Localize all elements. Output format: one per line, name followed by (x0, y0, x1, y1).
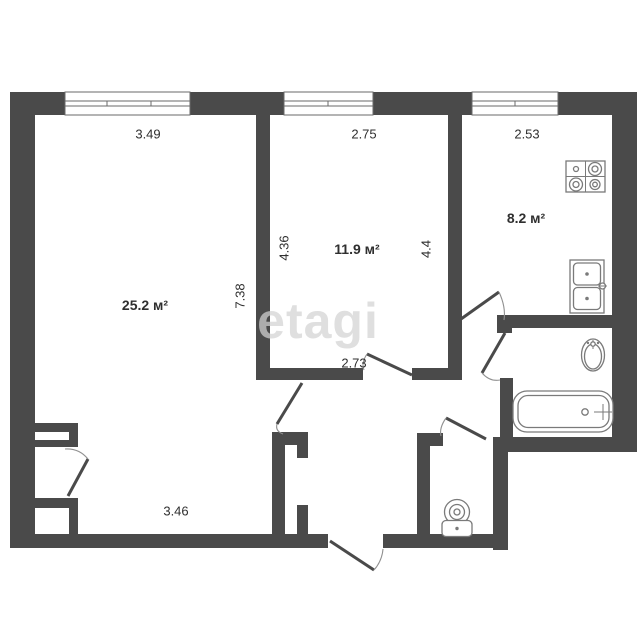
floor-plan: 3.49 2.75 2.53 7.38 4.36 4.4 2.73 3.46 2… (0, 0, 640, 640)
dim-living-bottom: 3.46 (163, 504, 188, 519)
closet-wall-stub (35, 440, 78, 447)
washbasin-icon (582, 339, 605, 371)
stove-icon (566, 161, 605, 192)
wall-segment (493, 440, 508, 550)
dim-middle-right: 4.4 (419, 240, 434, 258)
wall-segment (448, 115, 462, 380)
dim-kitchen-top: 2.53 (514, 127, 539, 142)
bathtub-icon (513, 391, 613, 432)
dim-middle-top: 2.75 (351, 127, 376, 142)
wall-segment (417, 433, 430, 548)
wall-segment (373, 92, 472, 115)
closet-wall-stub (69, 498, 78, 535)
dim-middle-left: 4.36 (277, 235, 292, 260)
dim-living-top: 3.49 (135, 127, 160, 142)
area-label-middle-room: 11.9 м² (334, 241, 380, 257)
wall-segment (190, 92, 284, 115)
wall-segment (493, 437, 637, 452)
wall-segment (497, 315, 637, 328)
window-living-room (65, 92, 190, 115)
wall-segment (272, 432, 285, 548)
wall-segment (10, 92, 35, 548)
window-kitchen (472, 92, 558, 115)
wall-segment (500, 378, 513, 440)
wall-segment (612, 92, 637, 452)
dim-living-height: 7.38 (233, 283, 248, 308)
area-label-kitchen: 8.2 м² (507, 210, 546, 226)
window-middle-room (284, 92, 373, 115)
wall-segment (417, 433, 443, 446)
toilet-icon (442, 500, 472, 537)
wall-segment (297, 445, 308, 458)
floor-plan-page: 3.49 2.75 2.53 7.38 4.36 4.4 2.73 3.46 2… (0, 0, 640, 640)
etagi-watermark: etagi (257, 293, 379, 349)
kitchen-sink-icon (570, 260, 607, 313)
area-label-living-room: 25.2 м² (122, 297, 168, 313)
dim-middle-bottom: 2.73 (341, 356, 366, 371)
wall-segment (297, 505, 308, 537)
